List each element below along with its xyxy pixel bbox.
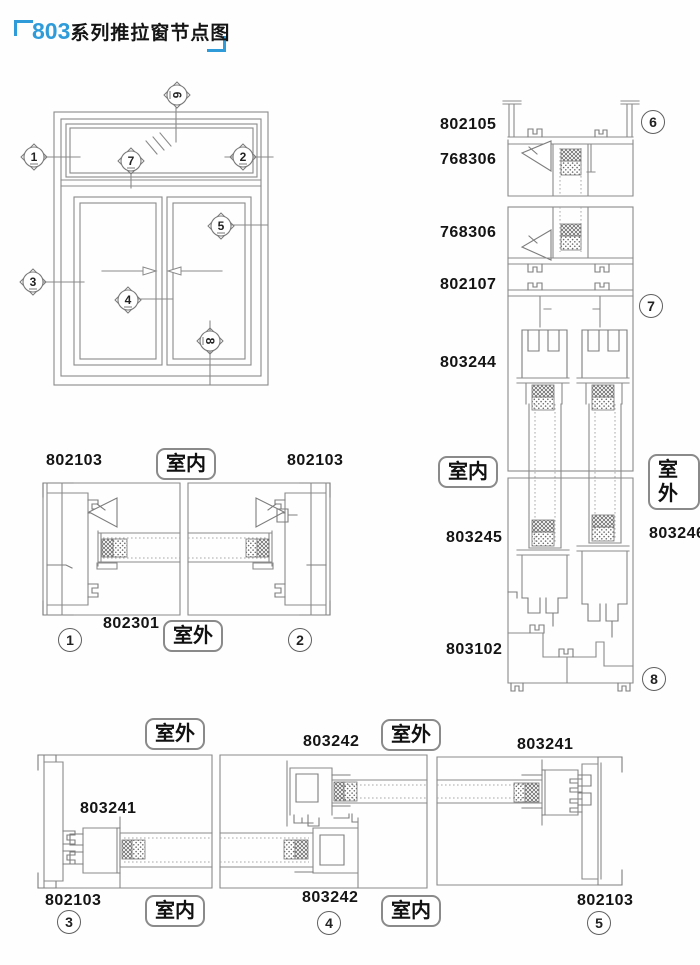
part-label-jamb-left: 802103	[46, 452, 102, 470]
section-circle-7: 7	[639, 294, 663, 318]
section-circle-2: 2	[288, 628, 312, 652]
section-circle-8: 8	[642, 667, 666, 691]
part-label-head-frame: 802105	[440, 116, 496, 134]
part-label-sill: 803102	[446, 641, 502, 659]
horizontal-sections-3-4-5	[38, 755, 622, 888]
outdoor-label-right-column: 室外	[648, 454, 700, 510]
section-circle-4: 4	[317, 911, 341, 935]
svg-text:5: 5	[218, 219, 225, 233]
drawing-page: 1 2 3 4 5 7	[0, 0, 700, 965]
svg-text:1: 1	[31, 150, 38, 164]
part-label-slide-sash-right: 803241	[517, 736, 573, 754]
outdoor-label-section3: 室外	[145, 718, 205, 750]
part-label-sash-top: 803244	[440, 354, 496, 372]
indoor-label-sections12: 室内	[156, 448, 216, 480]
section-circle-3: 3	[57, 910, 81, 934]
svg-text:4: 4	[125, 293, 132, 307]
section-circle-5: 5	[587, 911, 611, 935]
part-label-meet-top: 803242	[303, 733, 359, 751]
horizontal-sections-1-2	[43, 483, 330, 615]
part-label-transom: 802107	[440, 276, 496, 294]
title-text: 系列推拉窗节点图	[70, 23, 230, 44]
part-label-head-bead: 768306	[440, 151, 496, 169]
part-label-slide-jamb-right: 802103	[577, 892, 633, 910]
svg-text:6: 6	[170, 92, 184, 99]
section-marker-4: 4	[115, 287, 141, 313]
section-marker-2: 2	[230, 144, 256, 170]
vertical-sections-6-7-8	[503, 101, 639, 691]
svg-text:7: 7	[128, 154, 135, 168]
indoor-label-section4: 室内	[381, 895, 441, 927]
outdoor-label-section4: 室外	[381, 719, 441, 751]
section-marker-5: 5	[208, 213, 234, 239]
part-label-slide-jamb-left: 802103	[45, 892, 101, 910]
part-label-sash-bottom-right: 803246	[649, 525, 700, 543]
section-circle-6: 6	[641, 110, 665, 134]
part-label-sash-bottom-left: 803245	[446, 529, 502, 547]
svg-text:2: 2	[240, 150, 247, 164]
section-marker-8: 8	[197, 328, 223, 354]
part-label-fixed-mid: 802301	[103, 615, 159, 633]
indoor-label-section3: 室内	[145, 895, 205, 927]
section-marker-7: 7	[118, 148, 144, 174]
window-elevation: 1 2 3 4 5 7	[20, 82, 273, 385]
part-label-jamb-right: 802103	[287, 452, 343, 470]
part-label-slide-sash-left: 803241	[80, 800, 136, 818]
part-label-transom-bead: 768306	[440, 224, 496, 242]
indoor-label-right-column: 室内	[438, 456, 498, 488]
title-corner-top-left	[14, 20, 33, 36]
svg-text:8: 8	[203, 338, 217, 345]
part-label-meet-bottom: 803242	[302, 889, 358, 907]
glass-hatch	[146, 133, 171, 154]
section-circle-1: 1	[58, 628, 82, 652]
technical-drawing-canvas: 1 2 3 4 5 7	[0, 0, 700, 965]
title-series-number: 803	[32, 18, 70, 44]
section-marker-6: 6	[164, 82, 190, 108]
outdoor-label-sections12: 室外	[163, 620, 223, 652]
section-marker-3: 3	[20, 269, 46, 295]
section-marker-1: 1	[21, 144, 47, 170]
svg-text:3: 3	[30, 275, 37, 289]
